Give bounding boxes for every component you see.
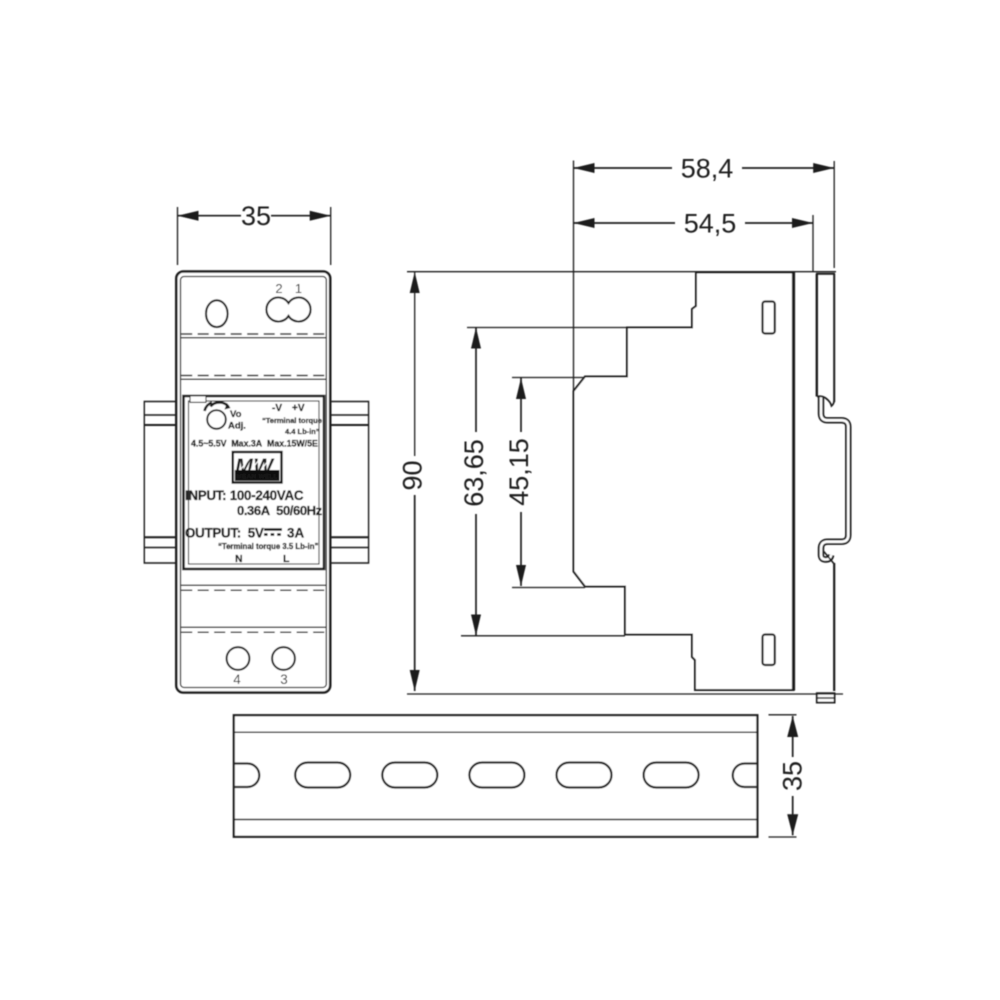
svg-text:2: 2: [275, 281, 282, 296]
svg-text:+V: +V: [292, 403, 305, 414]
svg-text:4: 4: [233, 672, 241, 687]
svg-text:35: 35: [241, 201, 271, 231]
svg-text:4.4 Lb-in”: 4.4 Lb-in”: [285, 427, 320, 436]
svg-text:INPUT: 100-240VAC: INPUT: 100-240VAC: [185, 488, 304, 503]
svg-text:35: 35: [778, 761, 808, 791]
svg-text:“Terminal torque 3.5 Lb-in”: “Terminal torque 3.5 Lb-in”: [218, 542, 318, 551]
svg-text:OUTPUT: 5V: OUTPUT: 5V: [185, 526, 264, 541]
svg-text:45,15: 45,15: [504, 438, 534, 506]
svg-text:90: 90: [398, 460, 428, 490]
svg-text:63,65: 63,65: [459, 439, 489, 507]
svg-text:“Terminal torque: “Terminal torque: [262, 416, 322, 425]
svg-text:Adj.: Adj.: [228, 421, 246, 432]
svg-text:3A: 3A: [287, 526, 304, 541]
svg-text:Vo: Vo: [230, 409, 242, 420]
svg-text:N: N: [235, 553, 243, 565]
svg-text:MEAN WELL: MEAN WELL: [236, 474, 277, 481]
svg-text:58,4: 58,4: [681, 154, 734, 184]
svg-text:0.36A 50/60Hz: 0.36A 50/60Hz: [237, 503, 323, 518]
svg-text:-V: -V: [272, 403, 282, 414]
svg-text:4.5~5.5V Max.3A Max.15W/5E: 4.5~5.5V Max.3A Max.15W/5E: [191, 439, 318, 449]
svg-text:54,5: 54,5: [684, 209, 737, 239]
svg-text:1: 1: [295, 281, 302, 296]
svg-text:3: 3: [280, 672, 288, 687]
svg-text:L: L: [283, 553, 290, 565]
